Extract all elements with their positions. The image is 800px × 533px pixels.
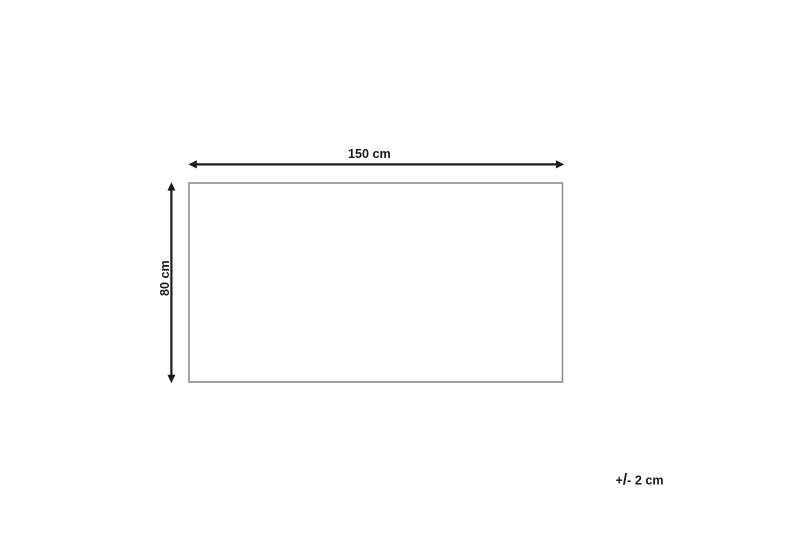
svg-text:+/- 2 cm: +/- 2 cm	[616, 472, 664, 489]
svg-text:80 cm: 80 cm	[158, 260, 172, 296]
svg-text:150 cm: 150 cm	[348, 147, 391, 161]
